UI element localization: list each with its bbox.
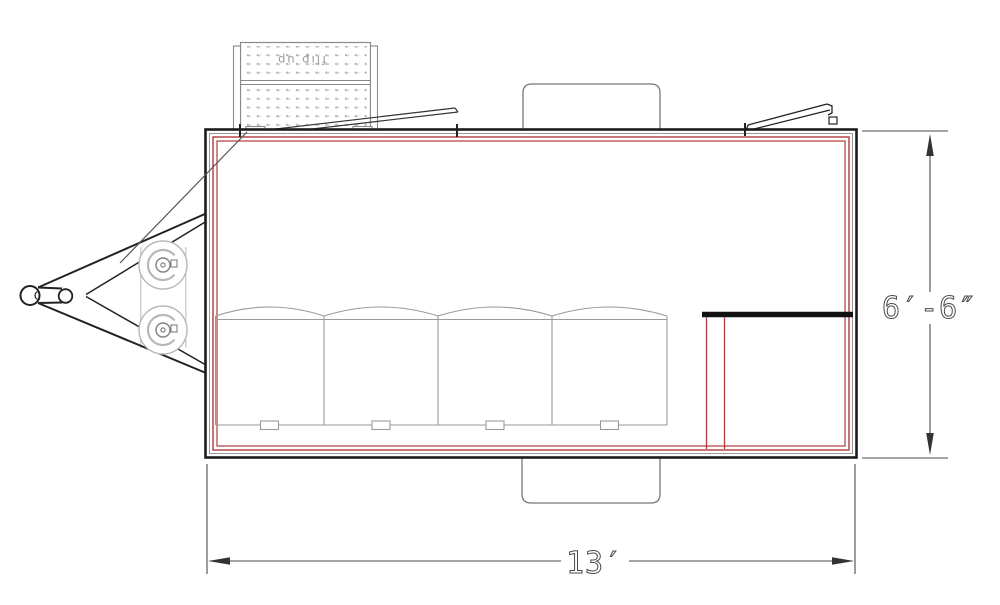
dimension-height-label: 6′-6″ [882, 291, 977, 326]
coupler-body [38, 288, 62, 289]
pegboard-frame-left [234, 46, 241, 130]
flip-door-right-edge [746, 110, 830, 131]
coupler-pin-hole [59, 289, 73, 303]
arrowhead-left [208, 557, 230, 565]
trailer-body [206, 130, 857, 458]
arrowhead-right [832, 557, 854, 565]
coupler-nose [21, 286, 40, 305]
arrowhead-down [926, 433, 934, 455]
wall-outer [206, 130, 857, 458]
propane-tank-1 [139, 241, 187, 289]
hitch-coupler [21, 286, 73, 305]
drawing-svg: flip up [0, 0, 1000, 605]
freezer-foot [601, 421, 619, 430]
pegboard-panel: flip up [234, 43, 378, 135]
flip-door-right-edge [748, 104, 827, 125]
dimension-length [207, 464, 855, 574]
flip-door-right-open [746, 104, 832, 131]
freezer-foot [261, 421, 279, 430]
peg-holes-lower [246, 88, 367, 128]
arrowhead-up [926, 134, 934, 156]
flip-door-left-endcap [455, 108, 458, 112]
dimension-length-label: 13′ [566, 546, 623, 581]
handwritten-note: flip up [276, 53, 326, 67]
tank-valve-handle [171, 260, 177, 267]
freezer-foot [372, 421, 390, 430]
freezer-foot [486, 421, 504, 430]
jamb-bracket [829, 117, 837, 124]
propane-tank-2 [139, 306, 187, 354]
coupler-body [38, 303, 62, 304]
tongue-frame [21, 214, 207, 374]
tank-valve-handle [171, 325, 177, 332]
tank-valve-hub [156, 323, 170, 337]
trailer-floorplan-drawing: flip up [0, 0, 1000, 605]
tank-valve-hub [156, 258, 170, 272]
